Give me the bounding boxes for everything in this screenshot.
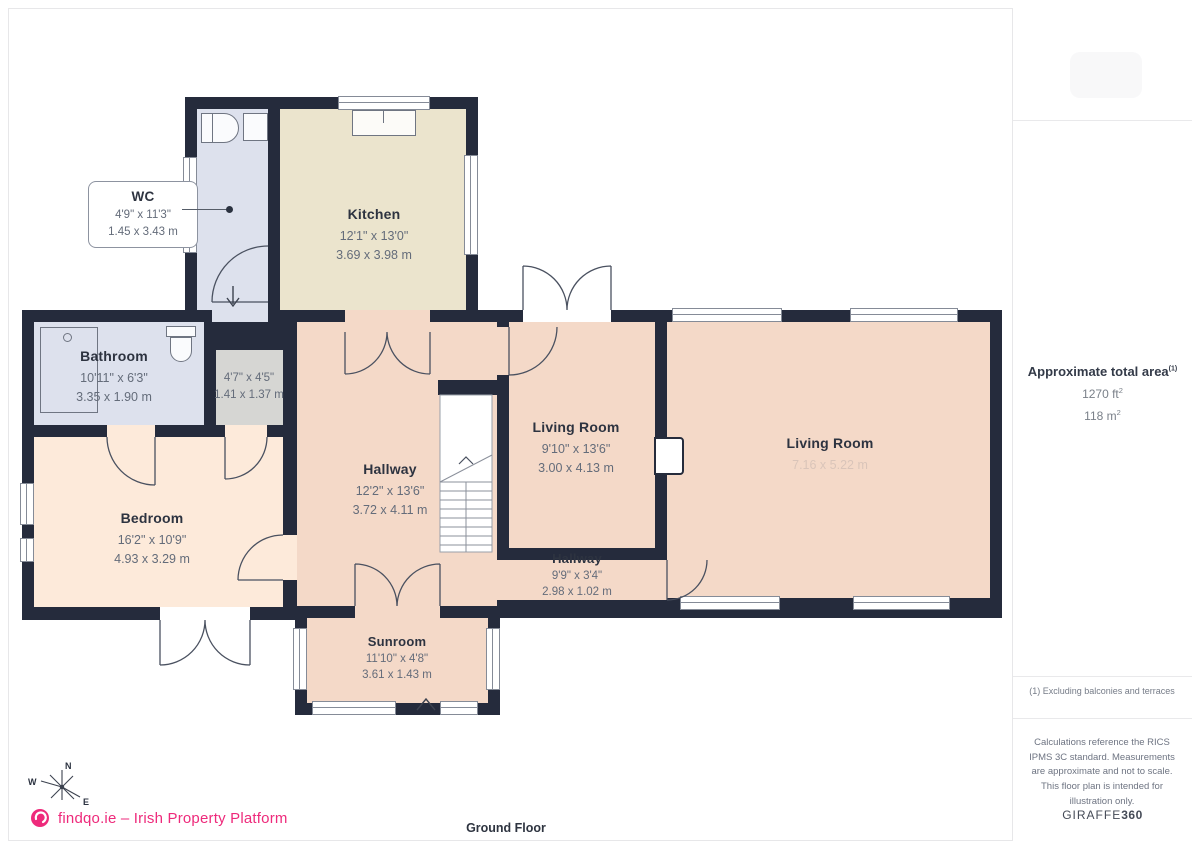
doorway-wc (212, 306, 268, 322)
total-area-ft: 1270 ft2 (1013, 386, 1192, 401)
room-label-bedroom: Bedroom 16'2" x 10'9" 4.93 x 3.29 m (67, 510, 237, 569)
total-area-title: Approximate total area(1) (1013, 364, 1192, 379)
room-name: Hallway (305, 461, 475, 477)
floorplan-canvas: WC 4'9" x 11'3" 1.45 x 3.43 m Kitchen 12… (0, 0, 1200, 849)
disclaimer-text: Calculations reference the RICS IPMS 3C … (1028, 736, 1176, 810)
room-name: Kitchen (289, 206, 459, 222)
window (853, 596, 950, 610)
room-dim-metric: 3.69 x 3.98 m (289, 246, 459, 265)
cabinet-icon (243, 113, 268, 141)
room-dim-imperial: 11'10" x 4'8" (312, 651, 482, 667)
room-label-living-left: Living Room 9'10" x 13'6" 3.00 x 4.13 m (491, 419, 661, 478)
doorway-french-living (523, 310, 611, 322)
giraffe360-logo: GIRAFFE360 (1013, 808, 1192, 822)
room-label-kitchen: Kitchen 12'1" x 13'0" 3.69 x 3.98 m (289, 206, 459, 265)
window (672, 308, 782, 322)
room-name: Sunroom (312, 634, 482, 649)
room-dim-metric: 2.98 x 1.02 m (492, 584, 662, 600)
room-dim-imperial: 4'7" x 4'5" (204, 370, 294, 387)
sidebar-divider (1013, 718, 1192, 719)
sink-tap-line (383, 110, 384, 123)
doorway-bedroom (283, 535, 297, 580)
room-dim-metric: 7.16 x 5.22 m (745, 456, 915, 475)
room-dim-metric: 3.35 x 1.90 m (29, 388, 199, 407)
doorway-living-left (497, 327, 509, 375)
room-dim-imperial: 10'11" x 6'3" (29, 369, 199, 388)
room-label-hallway-bottom: Hallway 9'9" x 3'4" 2.98 x 1.02 m (492, 551, 662, 600)
room-name: WC (97, 189, 189, 204)
doorway-store (225, 425, 267, 437)
room-label-bathroom: Bathroom 10'11" x 6'3" 3.35 x 1.90 m (29, 348, 199, 407)
room-dim-imperial: 16'2" x 10'9" (67, 531, 237, 550)
total-area-m: 118 m2 (1013, 408, 1192, 423)
toilet-icon (201, 113, 239, 143)
room-dim-metric: 3.00 x 4.13 m (491, 459, 661, 478)
room-dim-imperial: 12'2" x 13'6" (305, 482, 475, 501)
room-label-hallway: Hallway 12'2" x 13'6" 3.72 x 4.11 m (305, 461, 475, 520)
window (312, 701, 396, 715)
window (293, 628, 307, 690)
toilet-tank-line (212, 113, 213, 143)
floor-caption: Ground Floor (0, 821, 1012, 835)
stair-wall-stub (438, 380, 497, 395)
info-sidebar (1012, 8, 1193, 841)
room-dim-metric: 1.45 x 3.43 m (97, 224, 189, 241)
doorway-bathroom (107, 425, 155, 437)
room-name: Bedroom (67, 510, 237, 526)
callout-leader-line (182, 209, 228, 210)
room-name: Living Room (491, 419, 661, 435)
room-label-living-right: Living Room 7.16 x 5.22 m (745, 435, 915, 475)
room-dim-metric: 3.61 x 1.43 m (312, 667, 482, 683)
watermark-blob (1070, 52, 1142, 98)
room-label-sunroom: Sunroom 11'10" x 4'8" 3.61 x 1.43 m (312, 634, 482, 683)
room-label-store: 4'7" x 4'5" 1.41 x 1.37 m (204, 370, 294, 403)
room-label-wc: WC 4'9" x 11'3" 1.45 x 3.43 m (88, 181, 198, 248)
sidebar-divider (1013, 676, 1192, 677)
window (20, 538, 34, 562)
window (464, 155, 478, 255)
window (440, 701, 478, 715)
window (680, 596, 780, 610)
doorway-french-bedroom (160, 607, 250, 620)
callout-leader-dot (226, 206, 233, 213)
room-name: Living Room (745, 435, 915, 451)
window (338, 96, 430, 110)
toilet-tank-icon (166, 326, 196, 337)
window (486, 628, 500, 690)
doorway-sunroom (355, 606, 440, 618)
kitchen-sink-icon (352, 110, 416, 136)
total-area-block: Approximate total area(1) 1270 ft2 118 m… (1013, 364, 1192, 423)
room-dim-imperial: 12'1" x 13'0" (289, 227, 459, 246)
room-dim-metric: 3.72 x 4.11 m (305, 501, 475, 520)
window (850, 308, 958, 322)
room-name: Hallway (492, 551, 662, 566)
area-footnote: (1) Excluding balconies and terraces (1018, 686, 1186, 696)
doorway-hallway-top (345, 310, 430, 322)
shower-drain-icon (63, 333, 72, 342)
room-dim-imperial: 9'10" x 13'6" (491, 440, 661, 459)
window (20, 483, 34, 525)
room-dim-metric: 1.41 x 1.37 m (204, 387, 294, 404)
room-dim-imperial: 9'9" x 3'4" (492, 568, 662, 584)
room-dim-metric: 4.93 x 3.29 m (67, 550, 237, 569)
room-name: Bathroom (29, 348, 199, 364)
room-dim-imperial: 4'9" x 11'3" (97, 207, 189, 224)
sidebar-divider (1013, 120, 1192, 121)
